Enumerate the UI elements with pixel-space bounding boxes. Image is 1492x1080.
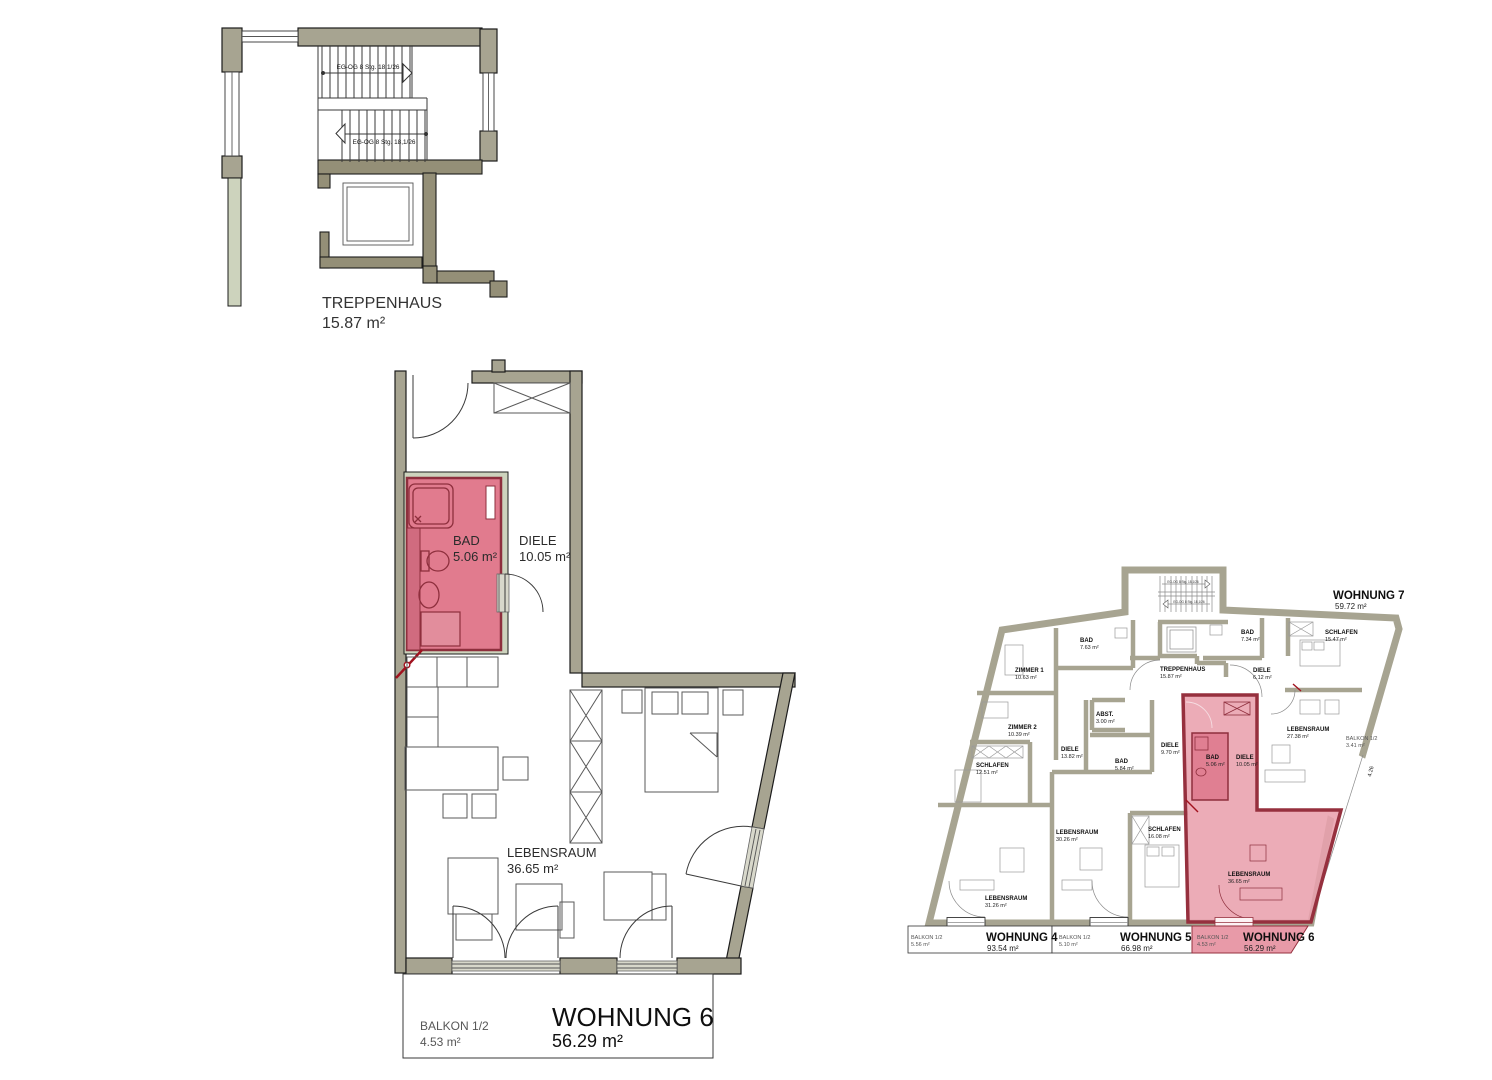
stairwell-area-label: 15.87 m² — [322, 315, 386, 332]
armchair — [604, 872, 652, 920]
bed — [645, 688, 718, 792]
ov-w4-bad-name: BAD — [1080, 638, 1094, 644]
ov-w5-area: 66.98 m² — [1121, 944, 1153, 953]
diele-area-label: 10.05 m² — [519, 549, 571, 564]
ov-w7-balkon-area: 3.41 m² — [1346, 743, 1365, 749]
balcony: BALKON 1/2 4.53 m² WOHNUNG 6 56.29 m² — [403, 974, 714, 1058]
ov-w7-area: 59.72 m² — [1335, 602, 1367, 611]
apartment-area: 56.29 m² — [552, 1031, 623, 1051]
ov-w4-diele-area: 13.82 m² — [1061, 754, 1083, 760]
elevator — [343, 183, 413, 245]
ov-w4-abst-area: 3.00 m² — [1096, 719, 1115, 725]
ov-w5-balkon-area: 5.10 m² — [1059, 942, 1078, 948]
lebensraum-name-label: LEBENSRAUM — [507, 845, 597, 860]
kitchen-units — [405, 657, 528, 818]
slanted-wall-upper — [752, 673, 795, 829]
ov-w6-lebensraum-area: 36.65 m² — [1228, 879, 1250, 885]
chair — [472, 794, 496, 818]
ov-w5-schlafen-area: 16.08 m² — [1148, 834, 1170, 840]
nightstand — [723, 690, 743, 715]
ov-treppenhaus-name: TREPPENHAUS — [1160, 667, 1205, 673]
ov-w5-diele-area: 9.70 m² — [1161, 750, 1180, 756]
washing-machine — [421, 612, 460, 646]
ov-w4-bad-area: 7.63 m² — [1080, 645, 1099, 651]
ov-w5-bad-area: 5.84 m² — [1115, 766, 1134, 772]
apartment-plan: BAD 5.06 m² DIELE 10.05 m² — [395, 360, 795, 1058]
ov-w5-lebensraum-area: 30.26 m² — [1056, 837, 1078, 843]
ov-w6-title: WOHNUNG 6 — [1243, 932, 1315, 944]
hall-wardrobe — [494, 383, 570, 413]
ov-w4-zimmer1-area: 10.63 m² — [1015, 675, 1037, 681]
ov-w4-schlafen-area: 12.51 m² — [976, 770, 998, 776]
ov-w4-zimmer2-area: 10.39 m² — [1008, 732, 1030, 738]
ov-w6-balkon-area: 4.53 m² — [1197, 942, 1216, 948]
wardrobe-column — [570, 690, 602, 843]
ov-w6-balkon-name: BALKON 1/2 — [1197, 935, 1229, 941]
ov-treppenhaus-area: 15.87 m² — [1160, 674, 1182, 680]
ov-w6-area: 56.29 m² — [1244, 944, 1276, 953]
ov-w4-schlafen-name: SCHLAFEN — [976, 763, 1009, 769]
dining-table — [405, 747, 498, 790]
stair-note-down: EG-OG 8 Stg. 18,1/26 — [353, 139, 416, 146]
ov-w5-lebensraum-name: LEBENSRAUM — [1056, 830, 1098, 836]
lebensraum-area-label: 36.65 m² — [507, 861, 559, 876]
ov-w4-lebensraum-area: 31.26 m² — [985, 903, 1007, 909]
ov-w4-balkon-area: 5.56 m² — [911, 942, 930, 948]
ov-w4-zimmer1-name: ZIMMER 1 — [1015, 668, 1044, 674]
ov-w7-balkon-name: BALKON 1/2 — [1346, 736, 1378, 742]
terrace-entry-door — [686, 826, 764, 888]
overview-plan: EG-OG 8 Stg. 18,1/26 EG-OG 8 Stg. 18,1/2… — [908, 570, 1405, 953]
ov-w6-diele-name: DIELE — [1236, 755, 1254, 761]
chair — [503, 757, 528, 780]
stair-note-up: EG-OG 8 Stg. 18,1/26 — [337, 64, 400, 71]
ov-w7-bad-area: 7.34 m² — [1241, 637, 1260, 643]
apartment-walls — [395, 360, 795, 974]
floor-plan-document: EG-OG 8 Stg. 18,1/26 EG-OG 8 Stg. 18,1/2… — [0, 0, 1492, 1080]
ov-w7-balkon-dim: 4.26 — [1367, 766, 1375, 778]
armchair — [516, 884, 562, 930]
nightstand — [622, 690, 642, 713]
stairwell-name-label: TREPPENHAUS — [322, 295, 442, 312]
ov-w4-diele-name: DIELE — [1061, 747, 1079, 753]
ov-w4-balkon-name: BALKON 1/2 — [911, 935, 943, 941]
ov-w6-lebensraum-name: LEBENSRAUM — [1228, 872, 1270, 878]
balkon-name-label: BALKON 1/2 — [420, 1019, 489, 1033]
ov-w5-title: WOHNUNG 5 — [1120, 932, 1192, 944]
ov-w7-schlafen-name: SCHLAFEN — [1325, 630, 1358, 636]
stairwell-plan: EG-OG 8 Stg. 18,1/26 EG-OG 8 Stg. 18,1/2… — [222, 28, 507, 332]
ov-w7-diele-name: DIELE — [1253, 668, 1271, 674]
ov-w7-title: WOHNUNG 7 — [1333, 590, 1405, 602]
ov-w7-lebensraum-name: LEBENSRAUM — [1287, 727, 1329, 733]
ov-w4-abst-name: ABST. — [1096, 712, 1114, 718]
entrance-door — [413, 375, 468, 438]
bad-area-label: 5.06 m² — [453, 549, 498, 564]
slanted-wall-lower — [725, 886, 753, 968]
ov-w7-diele-area: 6.12 m² — [1253, 675, 1272, 681]
diele-name-label: DIELE — [519, 533, 557, 548]
ov-w7-schlafen-area: 15.47 m² — [1325, 637, 1347, 643]
bathroom-door — [497, 574, 543, 612]
ov-w7-lebensraum-area: 27.38 m² — [1287, 734, 1309, 740]
ov-w4-lebensraum-name: LEBENSRAUM — [985, 896, 1027, 902]
ov-w4-zimmer2-name: ZIMMER 2 — [1008, 725, 1037, 731]
ov-w5-balkon-name: BALKON 1/2 — [1059, 935, 1091, 941]
ov-w5-schlafen-name: SCHLAFEN — [1148, 827, 1181, 833]
ov-w7-bad-name: BAD — [1241, 630, 1255, 636]
ov-w5-bad-name: BAD — [1115, 759, 1129, 765]
radiator — [486, 486, 495, 519]
overview-label-strip: BALKON 1/2 5.56 m² WOHNUNG 4 93.54 m² BA… — [908, 926, 1315, 953]
chimney — [492, 360, 505, 372]
ov-w6-bad-name: BAD — [1206, 755, 1220, 761]
bad-name-label: BAD — [453, 533, 480, 548]
overview-stair-note-down: EG-OG 8 Stg. 18,1/26 — [1173, 600, 1205, 604]
ov-w4-title: WOHNUNG 4 — [986, 932, 1058, 944]
chair — [443, 794, 467, 818]
ov-w5-diele-name: DIELE — [1161, 743, 1179, 749]
balkon-area-label: 4.53 m² — [420, 1035, 461, 1049]
ov-w6-diele-area: 10.05 m² — [1236, 762, 1258, 768]
apartment-title: WOHNUNG 6 — [552, 1002, 714, 1032]
ov-w6-bad-area: 5.06 m² — [1206, 762, 1225, 768]
ov-w4-area: 93.54 m² — [987, 944, 1019, 953]
overview-stair-note-up: EG-OG 8 Stg. 18,1/26 — [1167, 580, 1199, 584]
stairs: EG-OG 8 Stg. 18,1/26 EG-OG 8 Stg. 18,1/2… — [318, 46, 428, 162]
